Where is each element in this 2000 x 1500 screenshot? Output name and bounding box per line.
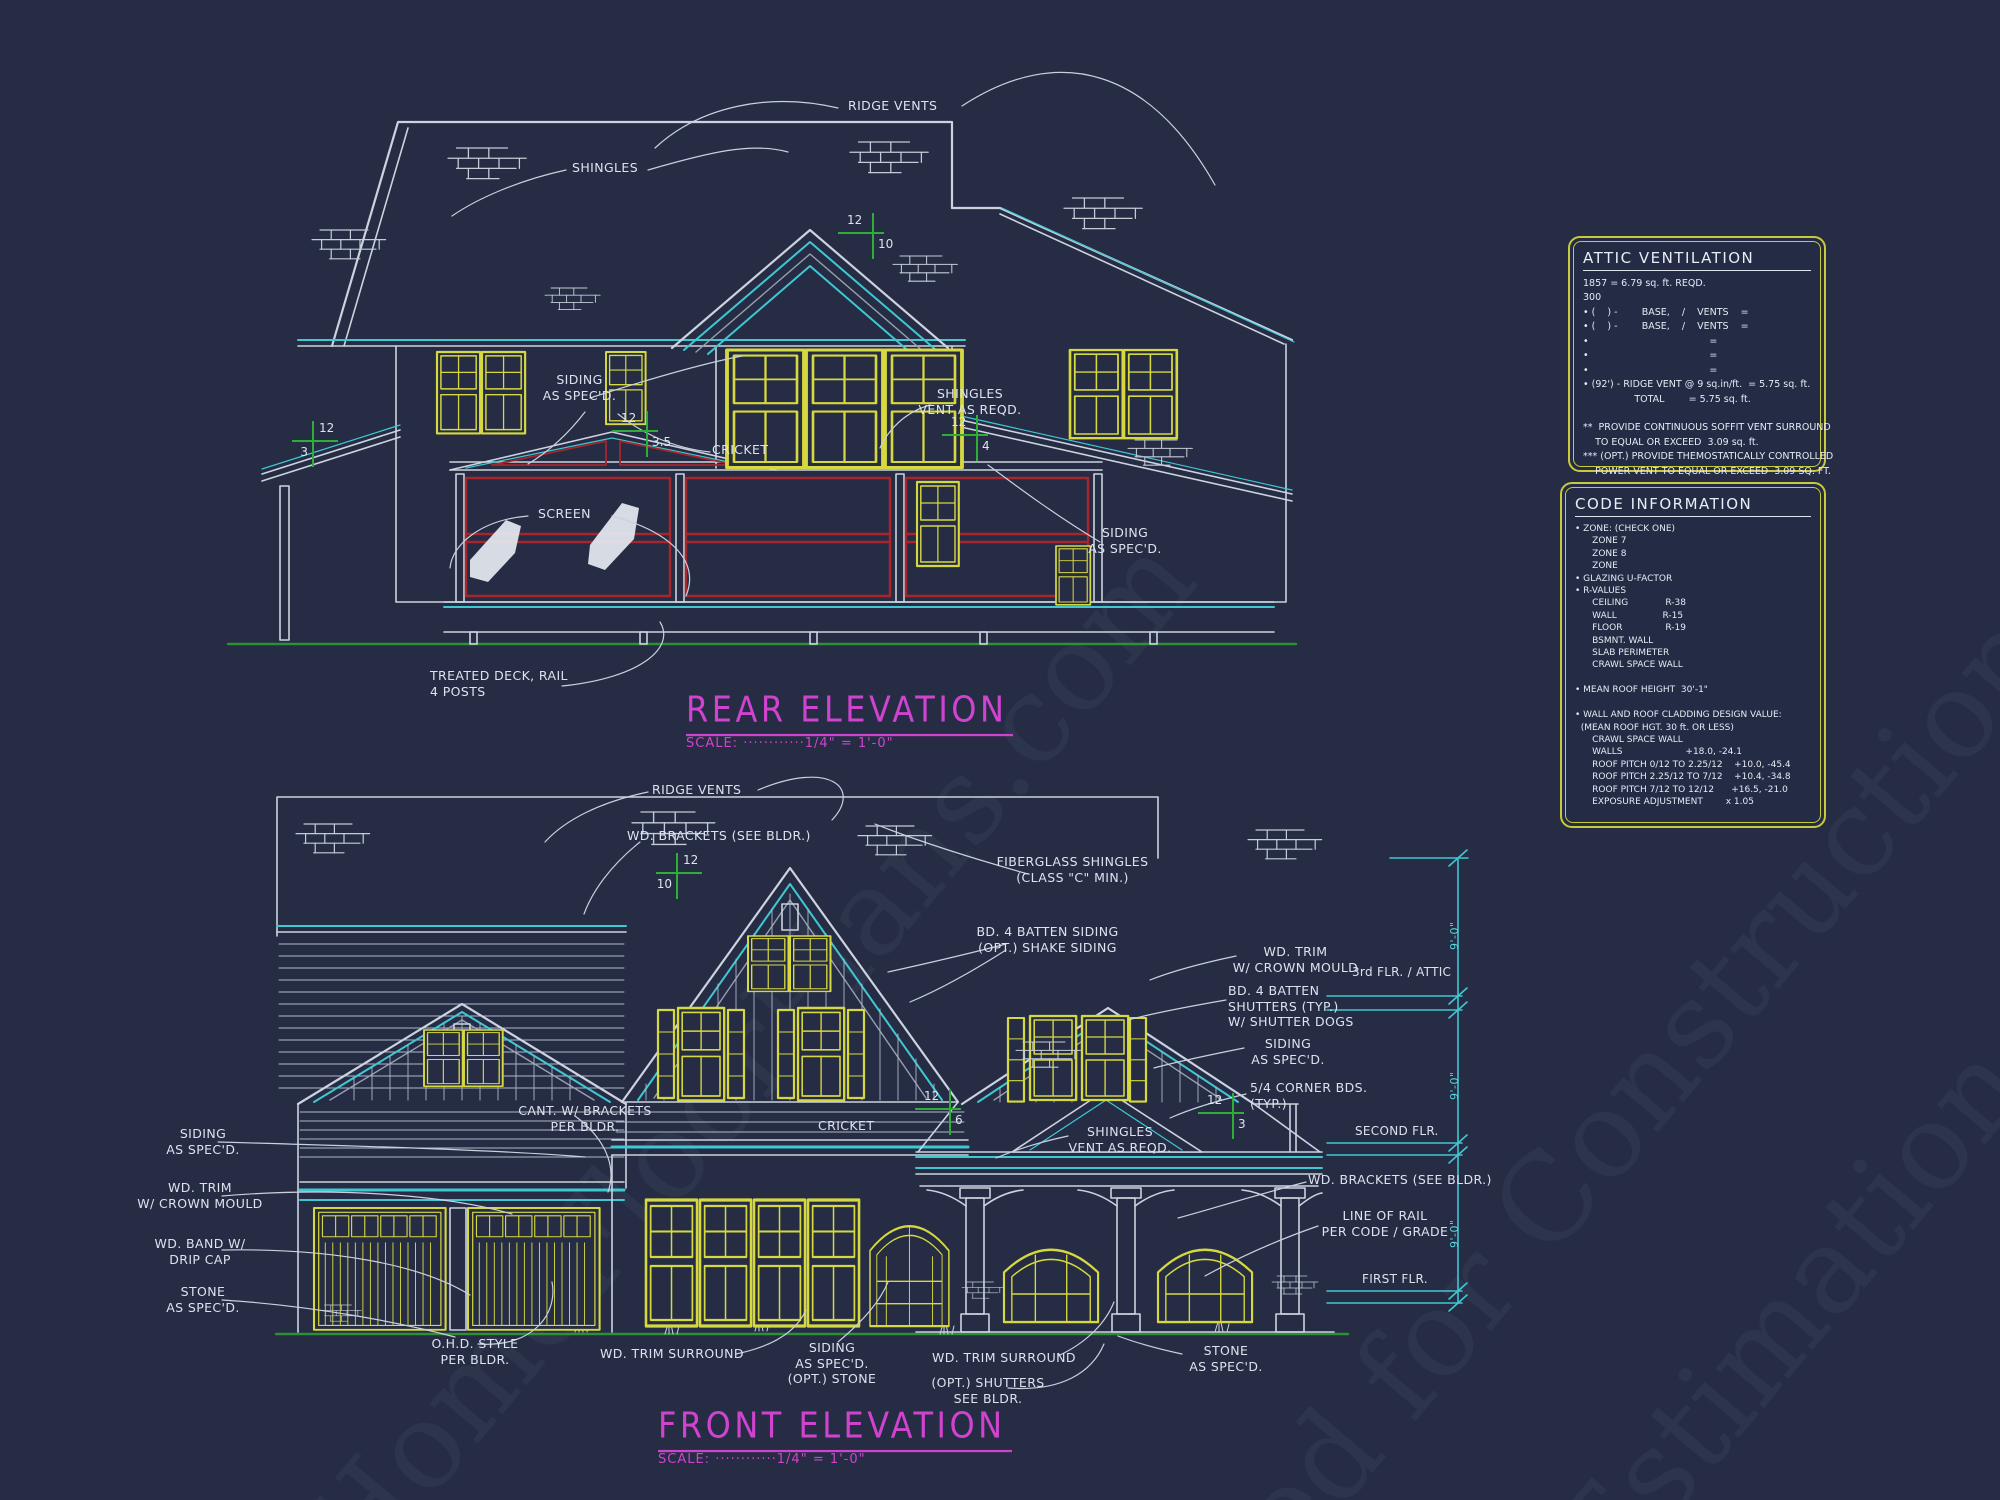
pitch-run: 10 <box>652 877 672 891</box>
pitch-line <box>838 232 884 234</box>
code-information-panel: CODE INFORMATION • ZONE: (CHECK ONE) ZON… <box>1560 482 1826 828</box>
pitch-rise: 12 <box>924 1089 939 1103</box>
pitch-line <box>1232 1093 1234 1139</box>
panel-text-line: EXPOSURE ADJUSTMENT x 1.05 <box>1575 796 1811 808</box>
front-label-ohd: O.H.D. STYLE PER BLDR. <box>415 1336 535 1367</box>
pitch-line <box>312 421 314 467</box>
panel-text-line: • = <box>1583 349 1811 363</box>
rear-label-deck: TREATED DECK, RAIL 4 POSTS <box>430 668 568 699</box>
front-elevation-scale: SCALE: ············1/4" = 1'-0" <box>658 1452 866 1467</box>
panel-text-line: ROOF PITCH 7/12 TO 12/12 +16.5, -21.0 <box>1575 784 1811 796</box>
floor-label-attic: 3rd FLR. / ATTIC <box>1352 965 1451 979</box>
pitch-line <box>656 872 702 874</box>
pitch-line <box>676 853 678 899</box>
rear-label-ridge-vents: RIDGE VENTS <box>848 98 937 114</box>
pitch-line <box>1198 1112 1244 1114</box>
panel-text-line: ZONE 8 <box>1575 548 1811 560</box>
porch-columns <box>927 1188 1322 1332</box>
front-label-siding-left: SIDING AS SPEC'D. <box>148 1126 258 1157</box>
panel-text-line: 1857 = 6.79 sq. ft. REQD. <box>1583 277 1811 291</box>
code-information-panel-inner: CODE INFORMATION • ZONE: (CHECK ONE) ZON… <box>1565 487 1821 823</box>
pitch-run: 3 <box>1238 1117 1246 1131</box>
pitch-rise: 12 <box>1207 1093 1222 1107</box>
pitch-line <box>976 415 978 461</box>
pitch-marker-rear-left: 12 3 <box>292 418 350 470</box>
pitch-run: 10 <box>878 237 893 251</box>
front-label-wd-trim-crown-right: WD. TRIM W/ CROWN MOULD <box>1228 944 1363 975</box>
panel-text-line: 300 <box>1583 291 1811 305</box>
dim-9-0-top: 9'-0" <box>1448 921 1461 950</box>
pitch-marker-rear-right: 12 4 <box>942 412 1000 464</box>
front-label-bd-batten-shutters: BD. 4 BATTEN SHUTTERS (TYP.) W/ SHUTTER … <box>1228 983 1354 1030</box>
front-label-wd-trim-surround-2: WD. TRIM SURROUND <box>932 1350 1076 1366</box>
panel-text-line: CRAWL SPACE WALL <box>1575 734 1811 746</box>
code-information-title: CODE INFORMATION <box>1575 495 1811 517</box>
panel-text-line: TOTAL = 5.75 sq. ft. <box>1583 393 1811 407</box>
screen-panels <box>466 478 1088 596</box>
pitch-run: 6 <box>955 1113 963 1127</box>
front-label-siding-right: SIDING AS SPEC'D. <box>1238 1036 1338 1067</box>
panel-text-line: ** PROVIDE CONTINUOUS SOFFIT VENT SURROU… <box>1583 421 1811 435</box>
pitch-line <box>292 440 338 442</box>
rear-label-siding-right: SIDING AS SPEC'D. <box>1070 525 1180 556</box>
panel-text-line: • WALL AND ROOF CLADDING DESIGN VALUE: <box>1575 709 1811 721</box>
panel-text-line <box>1583 407 1811 421</box>
front-label-ridge-vents: RIDGE VENTS <box>652 782 741 798</box>
panel-text-line: • ZONE: (CHECK ONE) <box>1575 523 1811 535</box>
panel-text-line: CRAWL SPACE WALL <box>1575 659 1811 671</box>
panel-text-line: SLAB PERIMETER <box>1575 647 1811 659</box>
pitch-line <box>646 411 648 457</box>
pitch-marker-rear-top: 12 10 <box>838 210 896 262</box>
front-label-stone-left: STONE AS SPEC'D. <box>148 1284 258 1315</box>
rear-elevation-drawing <box>228 72 1296 686</box>
panel-text-line: (MEAN ROOF HGT. 30 ft. OR LESS) <box>1575 722 1811 734</box>
pitch-rise: 12 <box>621 411 636 425</box>
front-label-corner-bds: 5/4 CORNER BDS. (TYP.) <box>1250 1080 1367 1111</box>
pitch-line <box>612 430 658 432</box>
attic-ventilation-panel: ATTIC VENTILATION 1857 = 6.79 sq. ft. RE… <box>1568 236 1826 472</box>
front-label-wd-trim-crown-left: WD. TRIM W/ CROWN MOULD <box>130 1180 270 1211</box>
pitch-rise: 12 <box>319 421 334 435</box>
pitch-line <box>872 213 874 259</box>
panel-text-line: • = <box>1583 364 1811 378</box>
front-label-bd-batten-siding: BD. 4 BATTEN SIDING (OPT.) SHAKE SIDING <box>960 924 1135 955</box>
rear-label-siding-left: SIDING AS SPEC'D. <box>522 372 637 403</box>
pitch-line <box>949 1089 951 1135</box>
pitch-run: 3 <box>288 445 308 459</box>
pitch-line <box>915 1108 961 1110</box>
panel-text-line: • GLAZING U-FACTOR <box>1575 573 1811 585</box>
panel-text-line <box>1575 672 1811 684</box>
panel-text-line: • R-VALUES <box>1575 585 1811 597</box>
panel-text-line: *** (OPT.) PROVIDE THEMOSTATICALLY CONTR… <box>1583 450 1811 464</box>
front-label-siding-opt-stone: SIDING AS SPEC'D. (OPT.) STONE <box>772 1340 892 1387</box>
pitch-marker-front-gable: 12 10 <box>656 850 714 902</box>
dim-9-0-bottom: 9'-0" <box>1448 1219 1461 1248</box>
front-label-cricket: CRICKET <box>818 1118 874 1134</box>
front-label-wd-band: WD. BAND W/ DRIP CAP <box>140 1236 260 1267</box>
pitch-marker-rear-mid: 12 3.5 <box>612 408 670 460</box>
rear-elevation-title: REAR ELEVATION <box>686 688 1013 736</box>
front-label-wd-brackets-right: WD. BRACKETS (SEE BLDR.) <box>1308 1172 1492 1188</box>
panel-text-line: • = <box>1583 335 1811 349</box>
pitch-marker-front-porch: 12 3 <box>1198 1090 1256 1142</box>
panel-text-line: ZONE <box>1575 560 1811 572</box>
panel-text-line: WALLS +18.0, -24.1 <box>1575 746 1811 758</box>
front-label-shingles-vent: SHINGLES VENT AS REQD. <box>1055 1124 1185 1155</box>
panel-text-line: • MEAN ROOF HEIGHT 30'-1" <box>1575 684 1811 696</box>
front-elevation-title: FRONT ELEVATION <box>658 1404 1012 1452</box>
code-information-lines: • ZONE: (CHECK ONE) ZONE 7 ZONE 8 ZONE• … <box>1575 523 1811 808</box>
front-label-opt-shutters: (OPT.) SHUTTERS SEE BLDR. <box>918 1375 1058 1406</box>
front-label-stone-right: STONE AS SPEC'D. <box>1176 1343 1276 1374</box>
attic-ventilation-panel-inner: ATTIC VENTILATION 1857 = 6.79 sq. ft. RE… <box>1573 241 1821 467</box>
panel-text-line: WALL R-15 <box>1575 610 1811 622</box>
panel-text-line: FLOOR R-19 <box>1575 622 1811 634</box>
front-label-line-of-rail: LINE OF RAIL PER CODE / GRADE <box>1315 1208 1455 1239</box>
blueprint-sheet: MyHomeFloorPlans.com Not Used for Constr… <box>0 0 2000 1500</box>
pitch-rise: 12 <box>847 213 862 227</box>
panel-text-line: • ( ) - BASE, / VENTS = <box>1583 320 1811 334</box>
rear-label-cricket: CRICKET <box>712 442 768 458</box>
rear-elevation-scale: SCALE: ············1/4" = 1'-0" <box>686 736 894 751</box>
pitch-marker-front-cricket: 12 6 <box>915 1086 973 1138</box>
panel-text-line: ZONE 7 <box>1575 535 1811 547</box>
front-label-wd-brackets-top: WD. BRACKETS (SEE BLDR.) <box>627 828 811 844</box>
front-label-wd-trim-surround-1: WD. TRIM SURROUND <box>600 1346 744 1362</box>
front-label-cant-brackets: CANT. W/ BRACKETS PER BLDR. <box>510 1103 660 1134</box>
floor-label-first: FIRST FLR. <box>1362 1272 1428 1286</box>
rear-label-screen: SCREEN <box>538 506 591 522</box>
panel-text-line: POWER VENT TO EQUAL OR EXCEED 3.09 SQ. F… <box>1583 465 1811 479</box>
panel-text-line: BSMNT. WALL <box>1575 635 1811 647</box>
panel-text-line: • (92') - RIDGE VENT @ 9 sq.in/ft. = 5.7… <box>1583 378 1811 392</box>
panel-text-line: CEILING R-38 <box>1575 597 1811 609</box>
panel-text-line: ROOF PITCH 2.25/12 TO 7/12 +10.4, -34.8 <box>1575 771 1811 783</box>
panel-text-line: ROOF PITCH 0/12 TO 2.25/12 +10.0, -45.4 <box>1575 759 1811 771</box>
pitch-line <box>942 434 988 436</box>
attic-ventilation-lines: 1857 = 6.79 sq. ft. REQD.300• ( ) - BASE… <box>1583 277 1811 479</box>
pitch-run: 3.5 <box>652 435 671 449</box>
panel-text-line <box>1575 697 1811 709</box>
pitch-rise: 12 <box>951 415 966 429</box>
dim-9-0-mid: 9'-0" <box>1448 1071 1461 1100</box>
panel-text-line: TO EQUAL OR EXCEED 3.09 sq. ft. <box>1583 436 1811 450</box>
rear-label-shingles: SHINGLES <box>572 160 638 176</box>
floor-label-second: SECOND FLR. <box>1355 1124 1439 1138</box>
pitch-run: 4 <box>982 439 990 453</box>
pitch-rise: 12 <box>683 853 698 867</box>
panel-text-line: • ( ) - BASE, / VENTS = <box>1583 306 1811 320</box>
attic-ventilation-title: ATTIC VENTILATION <box>1583 249 1811 271</box>
front-label-fiberglass-shingles: FIBERGLASS SHINGLES (CLASS "C" MIN.) <box>985 854 1160 885</box>
